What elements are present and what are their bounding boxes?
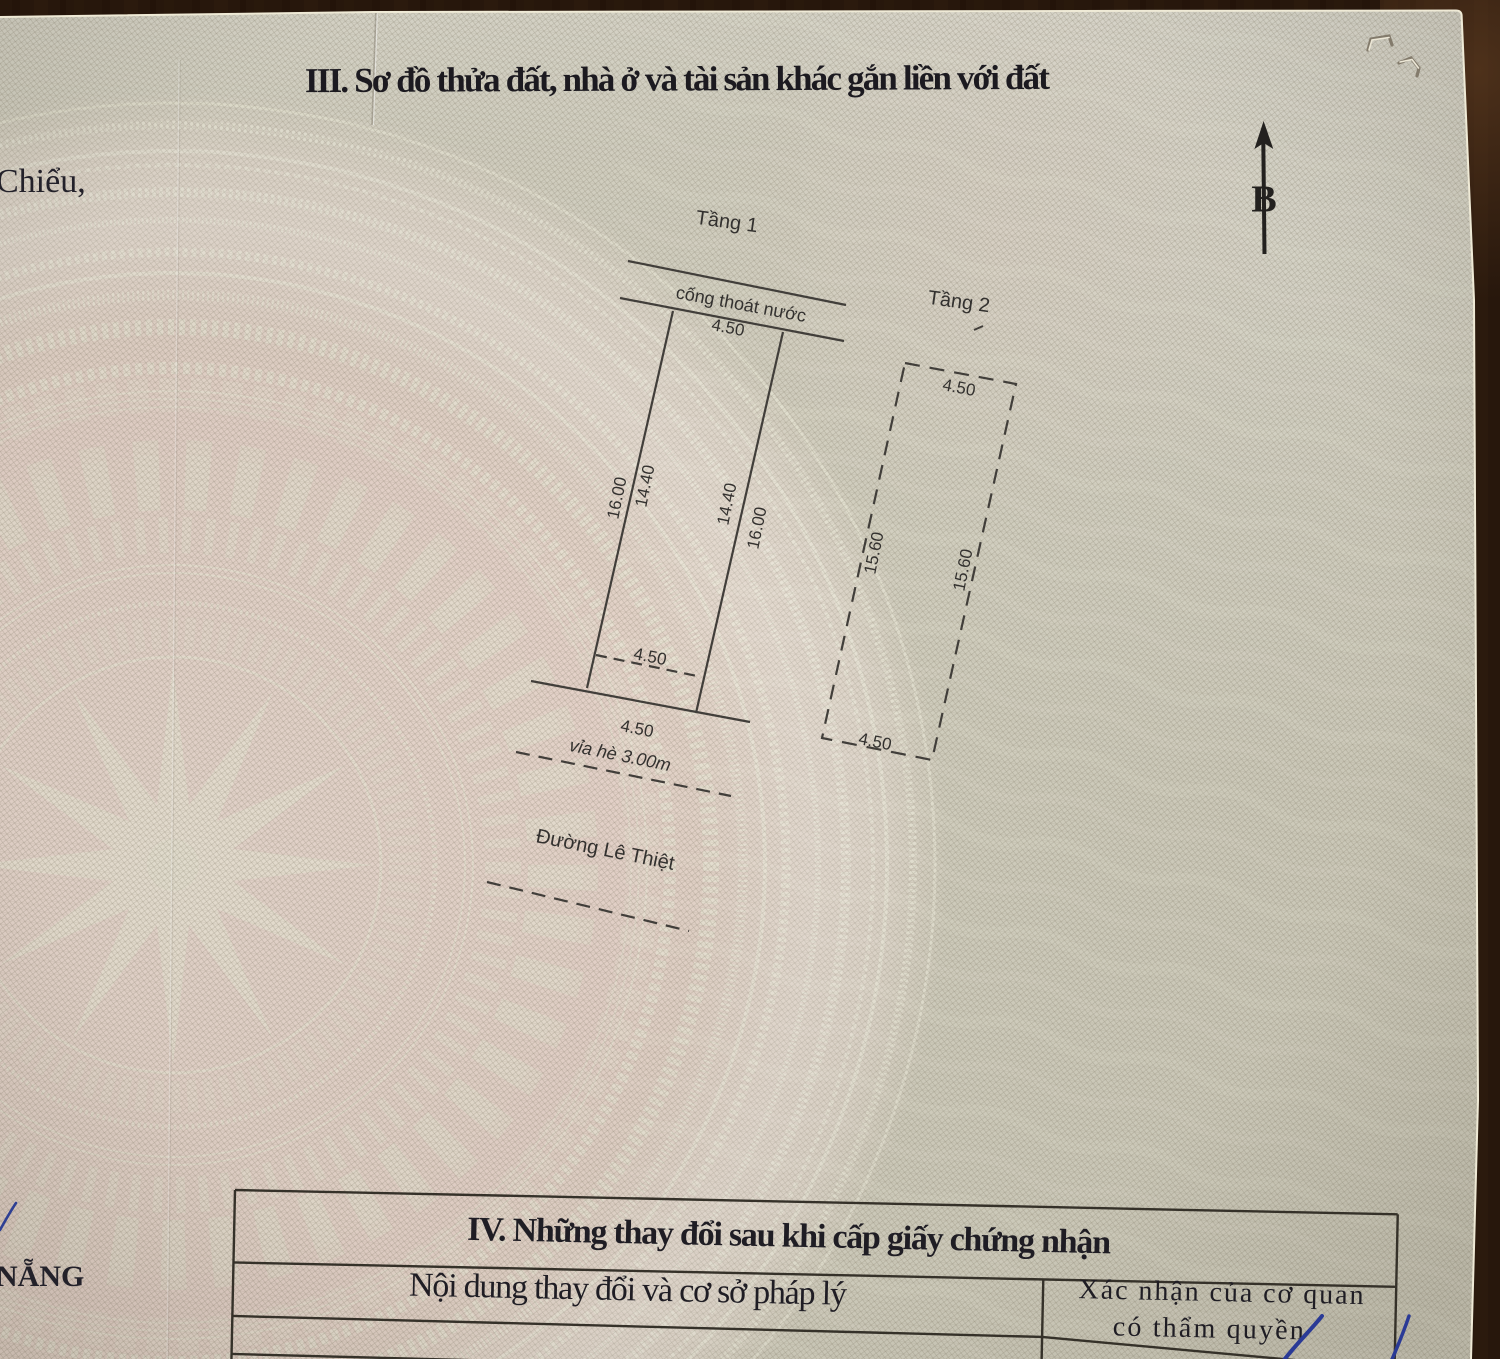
svg-text:III. Sơ đồ thửa đất, nhà ở và: III. Sơ đồ thửa đất, nhà ở và tài sản kh… <box>305 58 1051 100</box>
svg-text:Xác nhận của cơ quan: Xác nhận của cơ quan <box>1078 1274 1364 1311</box>
svg-text:B: B <box>1251 179 1276 221</box>
svg-text:NẴNG: NẴNG <box>0 1259 84 1293</box>
svg-text:Chiểu,: Chiểu, <box>0 163 86 200</box>
